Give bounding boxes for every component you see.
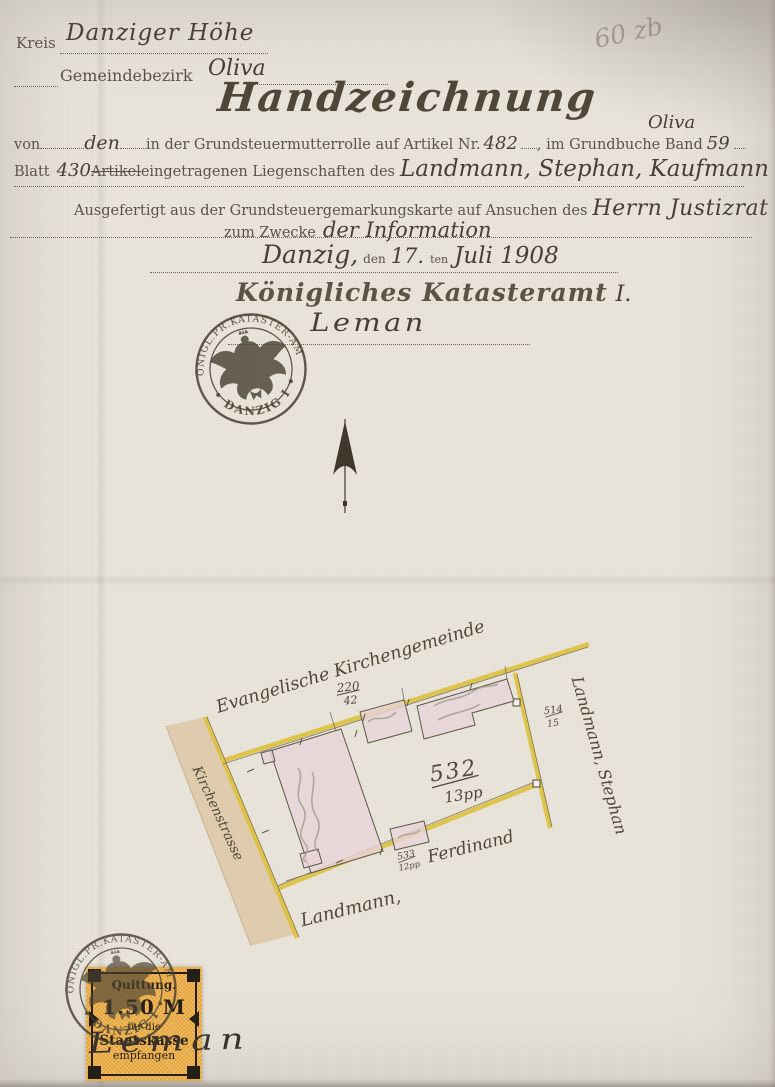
lead-4 [734, 134, 746, 149]
lead-3 [521, 134, 537, 149]
boundary-marker [533, 780, 540, 787]
official-seal: KÖNIGL.PR.KATASTER-AMT • DANZIG I • [179, 297, 324, 442]
stamp-corner [88, 1066, 101, 1079]
north-arrow-base [343, 501, 347, 506]
east-parcel-den: 15 [546, 717, 560, 730]
page-title: Handzeichnung [216, 74, 600, 121]
label-south-neighbor-2: Ferdinand [425, 827, 517, 868]
lead-1 [40, 134, 84, 149]
edge-shadow-right [769, 0, 775, 1087]
east-parcel-num: 514 [543, 704, 563, 718]
label-north-parcel: 220 42 [335, 679, 362, 708]
north-boundary [222, 644, 589, 761]
liegenschaften-label: eingetragenen Liegenschaften des [141, 164, 395, 180]
von-label: von [14, 137, 40, 153]
building-east [417, 679, 514, 739]
rule-empty [14, 186, 744, 187]
form-line-2: Blatt 430 Artikel eingetragenen Liegensc… [14, 156, 746, 182]
kreis-value: Danziger Höhe [66, 20, 254, 46]
kreis-label: Kreis [16, 34, 56, 52]
lead-bezirk [14, 72, 58, 87]
label-south-neighbor-1: Landmann, [297, 886, 403, 931]
office-signature: Leman [310, 308, 426, 337]
den-label: den [363, 252, 386, 266]
building-annex [261, 750, 275, 764]
fee-signature: Leman [88, 1021, 252, 1060]
building-small [390, 821, 429, 850]
rule-date [150, 272, 618, 273]
cadastral-map: Evangelische Kirchengemeinde 220 42 532 … [150, 605, 640, 975]
von-value: den [84, 132, 120, 154]
blatt-label: Blatt [14, 164, 50, 180]
mutterrolle-label: in der Grundsteuermutterrolle auf Artike… [146, 137, 481, 153]
parcel-num: 532 [428, 756, 479, 788]
label-south-parcel: 533 12pp [395, 848, 421, 874]
ten-label: ten [430, 253, 448, 266]
lead-2 [120, 134, 146, 149]
parcel-den: 13pp [443, 783, 484, 807]
label-parcel-number: 532 13pp [428, 755, 484, 808]
band-note-oliva: Oliva [648, 112, 695, 133]
blatt-nr-value: 430 [57, 160, 91, 181]
form-line-1: von den in der Grundsteuermutterrolle au… [14, 132, 746, 154]
bezirk-label: Gemeindebezirk [60, 66, 193, 85]
building-main [270, 729, 383, 873]
north-arrow [320, 413, 370, 518]
rule-kreis [60, 53, 268, 54]
artikel-nr-value: 482 [484, 133, 518, 154]
rule-zweck [10, 237, 752, 238]
day-value: 17. [391, 244, 424, 268]
band-nr-value: 59 [707, 133, 730, 154]
date-line: Danzig, den 17. ten Juli 1908 [262, 240, 559, 269]
requester-value: Herrn Justizrat Lau [592, 196, 775, 221]
ausgefertigt-label: Ausgefertigt aus der Grundsteuergemarkun… [74, 203, 587, 219]
office-suffix: I. [616, 282, 632, 307]
artikel-label-struck: Artikel [91, 164, 141, 180]
document-page: 60 zb Kreis Danziger Höhe Gemeindebezirk… [0, 0, 775, 1087]
grundbuch-label: , im Grundbuche Band [537, 137, 703, 153]
zweck-label: zum Zwecke [224, 225, 316, 241]
label-east-parcel: 514 15 [543, 704, 565, 730]
label-east-neighbor: Landmann, Stephan [567, 673, 631, 836]
city-value: Danzig, [262, 240, 358, 269]
zweck-value: der Information [323, 218, 492, 242]
stamp-corner [187, 1066, 200, 1079]
east-boundary [515, 673, 550, 828]
owner-value: Landmann, Stephan, Kaufmann [400, 156, 769, 182]
pencil-note: 60 zb [592, 11, 665, 54]
fold-crease-horizontal [0, 574, 775, 586]
zweck-line: zum Zwecke der Information [224, 218, 492, 242]
north-parcel-den: 42 [342, 693, 358, 707]
date-value: Juli 1908 [454, 243, 559, 269]
